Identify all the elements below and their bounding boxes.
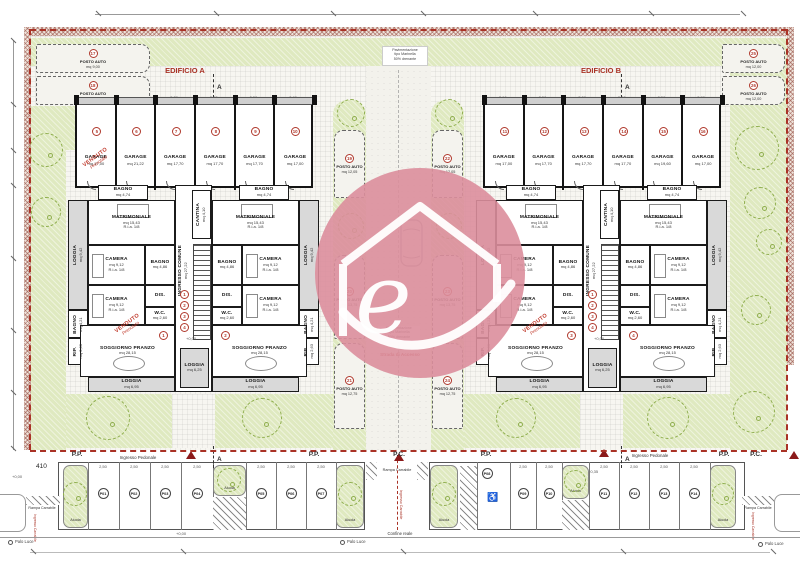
garage-pilaster (193, 95, 198, 105)
dining-table (653, 356, 685, 371)
room-label: RIP.mq 2,63 (73, 344, 84, 358)
tree-center (47, 215, 52, 220)
boundary-gate-label: P.P. (66, 451, 88, 458)
street-edge-line (0, 537, 800, 538)
tree (242, 398, 282, 438)
single-bed (654, 294, 666, 318)
garage: 14GARAGEmq 17,70 (604, 105, 644, 190)
stall-dim: 2,50 (93, 464, 113, 469)
parking-stall-badge: P03 (160, 488, 171, 499)
vehicle-entrance-label-center: Ingresso Carrabile (399, 490, 403, 519)
garage-label: GARAGE (532, 155, 554, 160)
room-label: DIS. (222, 293, 232, 299)
tree-center (576, 483, 581, 488)
paving-note-line3: 50% drenante (383, 57, 427, 61)
garage-label: GARAGE (612, 155, 634, 160)
tree (435, 99, 463, 127)
apartment-unit-A1: BAGNOmq 4,74LOGGIAmq 9,42MATRIMONIALEmq … (68, 185, 175, 392)
room-label: BAGNOmq 4,74 (114, 187, 133, 198)
room-label: CAMERAmq 9,12R.i.a. 1/8 (259, 297, 281, 312)
pedestrian-entrance-label-left: Ingresso Pedonale (108, 455, 168, 460)
single-bed (92, 254, 104, 278)
room-label: LOGGIAmq 6,95 (245, 379, 265, 390)
garage: 7GARAGEmq 17,70 (156, 105, 196, 190)
unit-number-badge: 19 (345, 154, 354, 163)
tree (31, 197, 61, 227)
room-label: CANTINAmq 4,10 (196, 203, 207, 226)
core-level-marker: +0,00 (186, 336, 196, 341)
room-label: CAMERAmq 9,12R.i.a. 1/8 (105, 257, 127, 272)
room-area: mq 4,21 (78, 317, 83, 331)
posto-auto-label: POSTO AUTO (336, 386, 362, 391)
room-label: BAGNOmq 4,74 (663, 187, 682, 198)
room-label: LOGGIAmq 6,25 (184, 363, 204, 374)
stall-dim: 2,50 (539, 464, 559, 469)
room-camera2: CAMERAmq 9,12R.i.a. 1/8 (242, 285, 299, 325)
garage-label: GARAGE (493, 155, 515, 160)
flower-bed-label: Aiuola (706, 518, 740, 522)
tree (735, 126, 779, 170)
core-level-marker: +0,00 (594, 336, 604, 341)
tree-center (445, 496, 450, 501)
stall-divider (276, 462, 277, 530)
room-label: W.C.mq 2,60 (153, 311, 167, 322)
room-area: mq 28,15 (527, 351, 544, 356)
tree-center (450, 116, 455, 121)
room-dis: DIS. (212, 285, 242, 307)
room-label: LOGGIAmq 9,42 (73, 245, 84, 265)
garage: 15GARAGEmq 19,60 (644, 105, 684, 190)
room-area: mq 27,22 (184, 262, 189, 279)
room-label: BAGNOmq 4,86 (218, 260, 237, 271)
unit-number-badge: 4 (180, 323, 189, 332)
room-name: DIS. (222, 293, 232, 299)
unit-number-badge: 25 (749, 49, 758, 58)
garage-label: GARAGE (651, 155, 673, 160)
room-label: LOGGIAmq 9,42 (712, 245, 723, 265)
parking-stall-badge: P11 (599, 488, 610, 499)
stall-divider (150, 462, 151, 530)
posto-auto-label: POSTO AUTO (80, 91, 106, 96)
unit-number-badge: 2 (221, 331, 230, 340)
room-area: mq 28,15 (251, 351, 268, 356)
section-letter-a-top: A (217, 84, 222, 91)
unit-number-badge: 13 (580, 127, 589, 136)
single-bed (654, 254, 666, 278)
tree (432, 482, 456, 506)
room-label: SOGGIORNO PRANZOmq 28,15 (100, 346, 155, 357)
posto-auto-area: mq 12,75 (342, 392, 358, 396)
room-label: BAGNOmq 4,74 (255, 187, 274, 198)
room-label: DIS. (155, 293, 165, 299)
dining-table (113, 356, 145, 371)
room-area: mq 6,25 (595, 368, 609, 373)
posto-auto-stall: 25POSTO AUTOmq 12,00 (722, 44, 785, 73)
room-area: mq 2,60 (220, 316, 234, 321)
walkway-b (580, 394, 623, 448)
ramp-right-label: Rampa Carrabile (736, 506, 780, 510)
unit-number-badge: 4 (629, 331, 638, 340)
unit-number-badge: 3 (180, 312, 189, 321)
apartment-unit-A2: BAGNOmq 4,74LOGGIAmq 9,42MATRIMONIALEmq … (212, 185, 319, 392)
flower-bed-label: Aiuola (59, 518, 92, 522)
room-area: mq 4,21 (717, 317, 722, 331)
tree-center (230, 482, 235, 487)
single-bed (246, 254, 258, 278)
room-bagno: BAGNOmq 4,86 (553, 245, 583, 285)
boundary-gate-label: P.P. (303, 451, 325, 458)
garage-pilaster (153, 95, 158, 105)
light-pole-icon (8, 540, 13, 545)
stall-dim: 2,50 (684, 464, 704, 469)
stall-divider (246, 462, 247, 530)
posto-auto-area: mq 9,00 (86, 65, 100, 69)
room-dis: DIS. (145, 285, 175, 307)
garage-label: GARAGE (692, 155, 714, 160)
garage-pilaster (114, 95, 119, 105)
room-label: MATRIMONIALEmq 15,43R.i.a. 1/8 (112, 215, 151, 230)
site-plan: EDIFICIO A EDIFICIO B Pavimentazione tip… (0, 0, 800, 565)
garage-pilaster (601, 95, 606, 105)
room-matrimoniale: MATRIMONIALEmq 15,43R.i.a. 1/8 (620, 200, 707, 245)
tree-center (351, 496, 356, 501)
parking-stall-badge: P04 (192, 488, 203, 499)
room-cantina: CANTINAmq 4,10 (192, 190, 211, 239)
unit-number-badge: 17 (89, 49, 98, 58)
room-label: LOGGIAmq 6,95 (121, 379, 141, 390)
unit-number-badge: 4 (588, 323, 597, 332)
tree-center (770, 244, 775, 249)
unit-number-badge: 12 (540, 127, 549, 136)
posto-auto-area: mq 12,00 (746, 65, 762, 69)
curb-left (0, 494, 26, 532)
room-camera1: CAMERAmq 9,12R.i.a. 1/8 (650, 245, 707, 285)
garage: 9GARAGEmq 17,70 (236, 105, 276, 190)
parking-stall-badge: P08 (482, 468, 493, 479)
room-core-loggia: LOGGIAmq 6,25 (180, 348, 209, 388)
posto-auto-stall: 26POSTO AUTOmq 12,00 (722, 76, 785, 105)
room-label: W.C.mq 2,60 (561, 311, 575, 322)
room-bagno: BAGNOmq 4,86 (145, 245, 175, 285)
room-area: mq 2,60 (561, 316, 575, 321)
walkway-a (172, 394, 215, 448)
unit-number-badge: 22 (443, 154, 452, 163)
street-dim-line (30, 552, 770, 553)
tree (647, 397, 689, 439)
unit-number-badge: 10 (291, 127, 300, 136)
parking-stall-badge: P14 (689, 488, 700, 499)
stairs (193, 244, 211, 340)
logo-watermark: e (313, 166, 527, 380)
ramp-left-hatch (26, 496, 60, 505)
garage-area: mq 17,70 (206, 161, 223, 166)
garage-pilaster (272, 95, 277, 105)
room-label: MATRIMONIALEmq 15,43R.i.a. 1/8 (644, 215, 683, 230)
parking-stall-badge: P10 (544, 488, 555, 499)
tree-center (759, 152, 764, 157)
room-area: mq 6,95 (656, 385, 670, 390)
room-area: mq 9,42 (717, 248, 722, 262)
tree (756, 229, 782, 255)
tree-center (352, 116, 357, 121)
room-label: CAMERAmq 9,12R.i.a. 1/8 (105, 297, 127, 312)
flower-bed-label: Aiuola (426, 518, 462, 522)
unit-number-badge: 9 (251, 127, 260, 136)
room-bagno: BAGNOmq 4,86 (620, 245, 650, 285)
dim-tick (771, 549, 777, 555)
entrance-marker-left (186, 451, 196, 459)
garage-area: mq 21,22 (127, 161, 144, 166)
room-wc: W.C.mq 2,60 (212, 307, 242, 325)
room-bagno_top: BAGNOmq 4,74 (647, 185, 697, 200)
garage-pilaster (482, 95, 487, 105)
room-area: mq 9,42 (78, 248, 83, 262)
room-area: mq 2,63 (78, 344, 83, 358)
boundary-line-left (29, 29, 31, 450)
garage-pilaster (720, 95, 725, 105)
room-label: SOGGIORNO PRANZOmq 28,15 (640, 346, 695, 357)
unit-number-badge: 1 (180, 290, 189, 299)
unit-number-badge: 3 (567, 331, 576, 340)
stall-dim: 2,50 (251, 464, 271, 469)
tree-center (264, 422, 269, 427)
stall-dim: 2,50 (187, 464, 207, 469)
garage: 16GARAGEmq 17,00 (683, 105, 723, 190)
tree (338, 482, 362, 506)
tree-center (762, 206, 767, 211)
light-pole-icon (758, 542, 763, 547)
stall-dim: 2,50 (124, 464, 144, 469)
room-area: mq 4,74 (665, 193, 679, 198)
room-area: mq 2,60 (153, 316, 167, 321)
dim-line-top (95, 14, 740, 15)
tree-center (518, 422, 523, 427)
room-matrimoniale: MATRIMONIALEmq 15,43R.i.a. 1/8 (88, 200, 175, 245)
paving-note-top: Pavimentazione tipo Marinella 50% drenan… (382, 46, 428, 66)
room-dis: DIS. (620, 285, 650, 307)
room-label: BAGNOmq 4,86 (151, 260, 170, 271)
garage: 12GARAGEmq 17,70 (525, 105, 565, 190)
parking-stall-badge: P13 (659, 488, 670, 499)
tree-center (756, 416, 761, 421)
boundary-gate-label: P.P. (475, 451, 497, 458)
tree-center (757, 313, 762, 318)
room-label: CAMERAmq 9,12R.i.a. 1/8 (667, 257, 689, 272)
room-camera1: CAMERAmq 9,12R.i.a. 1/8 (242, 245, 299, 285)
parking-stall-badge: P06 (286, 488, 297, 499)
stall-divider (306, 462, 307, 530)
tree-center (724, 496, 729, 501)
building-a-title: EDIFICIO A (140, 66, 230, 75)
stall-dim: 2,50 (281, 464, 301, 469)
room-soggiorno: SOGGIORNO PRANZOmq 28,152 (212, 325, 307, 377)
room-loggia_side: LOGGIAmq 9,42 (707, 200, 727, 310)
boundary-line-top (30, 29, 787, 31)
room-name: DIS. (563, 293, 573, 299)
stall-dim: 2,50 (624, 464, 644, 469)
room-area: mq 4,10 (202, 207, 207, 221)
room-label: LOGGIAmq 6,25 (592, 363, 612, 374)
stall-dim: 2,50 (155, 464, 175, 469)
stairs (601, 244, 619, 340)
garage-area: mq 19,60 (654, 161, 671, 166)
room-label: W.C.mq 2,60 (628, 311, 642, 322)
garage-area: mq 17,70 (535, 161, 552, 166)
dim-tick (741, 11, 747, 17)
dining-table (245, 356, 277, 371)
unit-number-badge: 8 (211, 127, 220, 136)
boundary-gate-label: P.P. (713, 451, 735, 458)
stall-divider (589, 462, 590, 530)
stall-divider (619, 462, 620, 530)
ramp-right-hatch (742, 496, 774, 505)
unit-number-badge: 7 (172, 127, 181, 136)
room-label: BAGNOmq 4,86 (626, 260, 645, 271)
room-label: CAMERAmq 9,12R.i.a. 1/8 (259, 257, 281, 272)
garage: 13GARAGEmq 17,70 (564, 105, 604, 190)
boundary-line-right (786, 29, 788, 450)
room-area: mq 27,22 (592, 262, 597, 279)
light-pole-label: Palo Luce (347, 539, 366, 544)
unit-number-badge: 15 (659, 127, 668, 136)
apartment-unit-B2: BAGNOmq 4,74LOGGIAmq 9,42MATRIMONIALEmq … (620, 185, 727, 392)
room-area: mq 6,95 (124, 385, 138, 390)
garage: 6GARAGEmq 21,22 (117, 105, 157, 190)
building-b-title: EDIFICIO B (556, 66, 646, 75)
garage-pilaster (561, 95, 566, 105)
parking-stall-badge: P02 (129, 488, 140, 499)
stall-dim: 2,50 (513, 464, 533, 469)
room-label: SOGGIORNO PRANZOmq 28,15 (232, 346, 287, 357)
room-area: mq 28,15 (119, 351, 136, 356)
unit-number-badge: 14 (619, 127, 628, 136)
room-area: mq 6,25 (187, 368, 201, 373)
stair-core-A: CANTINAmq 4,10INGRESSO COMUNEmq 27,22123… (175, 185, 212, 392)
room-ratio: R.i.a. 1/8 (262, 268, 278, 273)
tree (564, 470, 586, 492)
parking-stall-badge: P05 (256, 488, 267, 499)
boundary-band-right (787, 27, 794, 365)
tree-center (48, 153, 53, 158)
unit-number-badge: 3 (588, 312, 597, 321)
light-pole-icon (340, 540, 345, 545)
posto-auto-label: POSTO AUTO (740, 59, 766, 64)
room-label: BAGNOmq 4,21 (73, 315, 84, 334)
room-area: mq 4,74 (116, 193, 130, 198)
room-label: BAGNOmq 4,21 (712, 315, 723, 334)
parking-stall-badge: P09 (518, 488, 529, 499)
posto-auto-area: mq 12,75 (440, 392, 456, 396)
room-label: DIS. (630, 293, 640, 299)
tree (733, 391, 775, 433)
tree (86, 396, 130, 440)
room-ratio: R.i.a. 1/8 (655, 225, 671, 230)
room-area: mq 4,10 (610, 207, 615, 221)
garage-label: GARAGE (243, 155, 265, 160)
room-area: mq 4,86 (153, 265, 167, 270)
room-area: mq 6,95 (248, 385, 262, 390)
garage-pilaster (74, 95, 79, 105)
room-bagno: BAGNOmq 4,86 (212, 245, 242, 285)
pedestrian-entrance-label-right: Ingresso Pedonale (620, 453, 680, 458)
garage-pilaster (641, 95, 646, 105)
tree (63, 482, 87, 506)
room-ratio: R.i.a. 1/8 (123, 225, 139, 230)
level-marker-2: +0,00 (176, 531, 186, 536)
stall-divider (477, 462, 478, 530)
light-pole-label: Palo Luce (15, 539, 34, 544)
room-label: CANTINAmq 4,10 (604, 203, 615, 226)
garage-pilaster (522, 95, 527, 105)
tree-center (670, 422, 675, 427)
room-loggia_side: LOGGIAmq 9,42 (68, 200, 88, 310)
stall-divider (679, 462, 680, 530)
room-dis: DIS. (553, 285, 583, 307)
unit-number-badge: 11 (500, 127, 509, 136)
room-area: mq 28,15 (659, 351, 676, 356)
level-marker-1: +0,00 (12, 474, 22, 479)
tree (741, 295, 771, 325)
room-label: INGRESSO COMUNEmq 27,22 (178, 245, 189, 296)
stall-dim: 2,50 (654, 464, 674, 469)
tree (712, 483, 734, 505)
room-soggiorno: SOGGIORNO PRANZOmq 28,151VENDUTOPrenotat… (80, 325, 175, 377)
garage-area: mq 17,00 (695, 161, 712, 166)
flower-bed-label: Aiuola (332, 518, 368, 522)
posto-auto-label: POSTO AUTO (434, 386, 460, 391)
garage-block-A: 5GARAGEmq 17,00VENDUTOPrenotato6GARAGEmq… (75, 103, 313, 188)
garage-area: mq 17,70 (246, 161, 263, 166)
room-label: BAGNOmq 4,86 (559, 260, 578, 271)
room-label: MATRIMONIALEmq 15,43R.i.a. 1/8 (236, 215, 275, 230)
garage-label: GARAGE (204, 155, 226, 160)
venduto-stamp: VENDUTOPrenotato (76, 142, 118, 177)
room-area: mq 2,60 (628, 316, 642, 321)
room-label: DIS. (563, 293, 573, 299)
room-area: mq 2,63 (717, 344, 722, 358)
room-area: mq 6,95 (532, 385, 546, 390)
room-loggia_bottom: LOGGIAmq 6,95 (212, 377, 299, 392)
parking-hatch-area (562, 500, 589, 530)
property-boundary-label: Confine reale (370, 531, 430, 536)
room-ratio: R.i.a. 1/8 (670, 268, 686, 273)
room-camera2: CAMERAmq 9,12R.i.a. 1/8 (650, 285, 707, 325)
room-cantina: CANTINAmq 4,10 (600, 190, 619, 239)
room-area: mq 4,86 (220, 265, 234, 270)
dim-410: 410 (36, 463, 47, 470)
posto-auto-area: mq 12,00 (746, 97, 762, 101)
section-letter-b-top: A (625, 84, 630, 91)
curb-right (774, 494, 800, 532)
single-bed (246, 294, 258, 318)
room-matrimoniale: MATRIMONIALEmq 15,43R.i.a. 1/8 (212, 200, 299, 245)
room-area: mq 4,86 (628, 265, 642, 270)
section-letter-a-bottom: A (217, 456, 222, 463)
room-name: DIS. (155, 293, 165, 299)
room-label: INGRESSO COMUNEmq 27,22 (586, 245, 597, 296)
garage-label: GARAGE (124, 155, 146, 160)
room-area: mq 4,74 (257, 193, 271, 198)
tree (744, 187, 776, 219)
tree-center (110, 422, 115, 427)
room-label: CAMERAmq 9,12R.i.a. 1/8 (667, 297, 689, 312)
parking-stall-badge: P01 (98, 488, 109, 499)
garage-pilaster (680, 95, 685, 105)
room-wc: W.C.mq 2,60 (620, 307, 650, 325)
boundary-gate-label: P.C. (388, 451, 410, 458)
dim-line-left (13, 40, 14, 450)
stair-core-B: CANTINAmq 4,10INGRESSO COMUNEmq 27,22123… (583, 185, 620, 392)
